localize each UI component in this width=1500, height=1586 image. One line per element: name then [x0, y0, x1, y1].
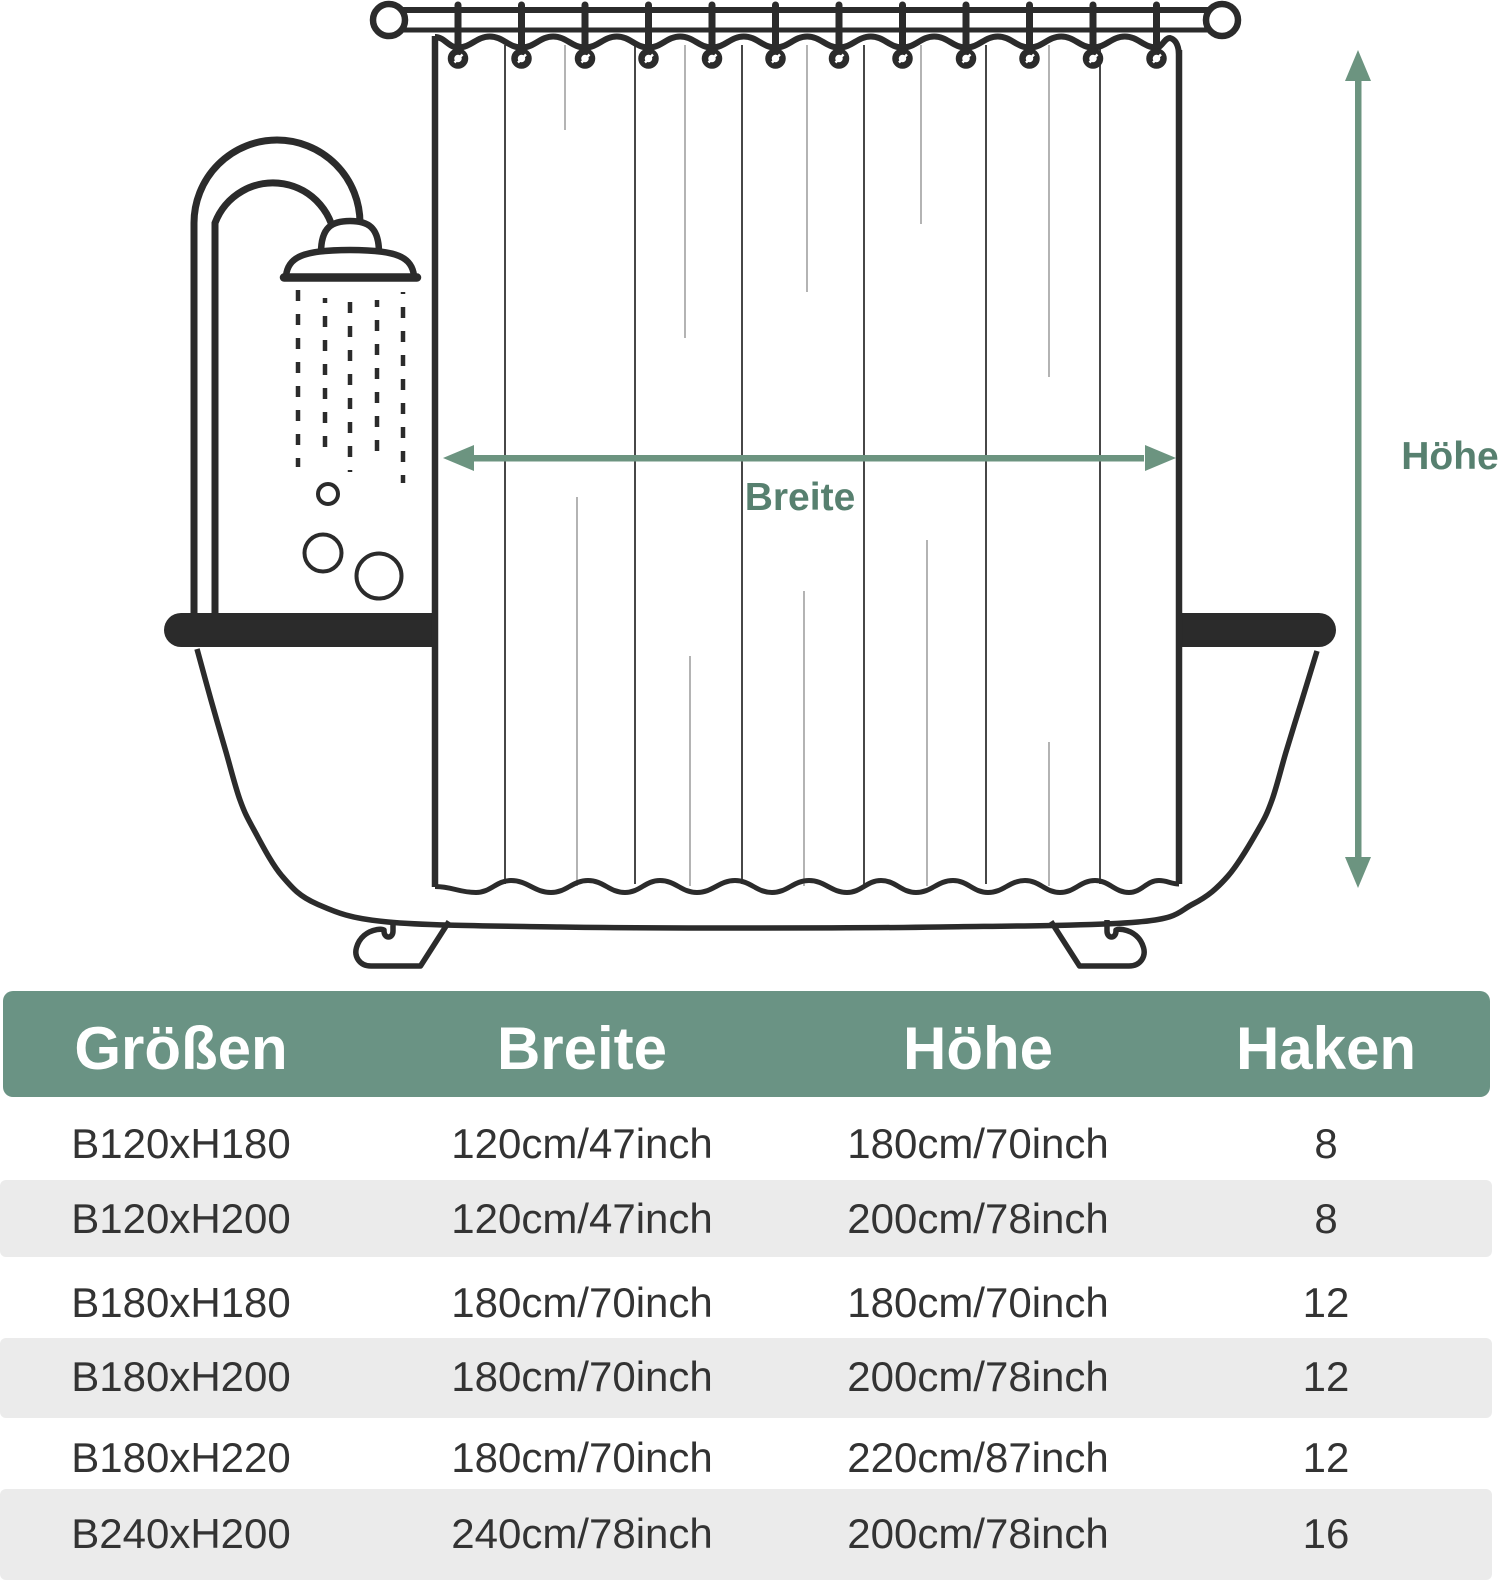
- svg-text:240cm/78inch: 240cm/78inch: [451, 1510, 713, 1557]
- svg-text:B240xH200: B240xH200: [71, 1510, 291, 1557]
- svg-text:220cm/87inch: 220cm/87inch: [847, 1434, 1109, 1481]
- svg-text:180cm/70inch: 180cm/70inch: [847, 1120, 1109, 1167]
- svg-text:Breite: Breite: [497, 1015, 667, 1082]
- svg-text:120cm/47inch: 120cm/47inch: [451, 1195, 713, 1242]
- svg-text:B180xH220: B180xH220: [71, 1434, 291, 1481]
- svg-text:180cm/70inch: 180cm/70inch: [451, 1279, 713, 1326]
- svg-text:16: 16: [1303, 1510, 1350, 1557]
- svg-text:8: 8: [1314, 1120, 1337, 1167]
- svg-text:Höhe: Höhe: [1401, 435, 1499, 478]
- svg-text:B180xH180: B180xH180: [71, 1279, 291, 1326]
- svg-text:8: 8: [1314, 1195, 1337, 1242]
- svg-text:Breite: Breite: [745, 476, 856, 519]
- svg-text:B180xH200: B180xH200: [71, 1353, 291, 1400]
- svg-text:12: 12: [1303, 1279, 1350, 1326]
- svg-text:Haken: Haken: [1236, 1015, 1416, 1082]
- svg-text:200cm/78inch: 200cm/78inch: [847, 1510, 1109, 1557]
- svg-text:Höhe: Höhe: [903, 1015, 1053, 1082]
- svg-text:12: 12: [1303, 1353, 1350, 1400]
- svg-text:180cm/70inch: 180cm/70inch: [451, 1353, 713, 1400]
- svg-text:180cm/70inch: 180cm/70inch: [451, 1434, 713, 1481]
- svg-text:200cm/78inch: 200cm/78inch: [847, 1353, 1109, 1400]
- svg-text:120cm/47inch: 120cm/47inch: [451, 1120, 713, 1167]
- svg-text:200cm/78inch: 200cm/78inch: [847, 1195, 1109, 1242]
- svg-text:180cm/70inch: 180cm/70inch: [847, 1279, 1109, 1326]
- svg-text:B120xH180: B120xH180: [71, 1120, 291, 1167]
- svg-text:Größen: Größen: [74, 1015, 287, 1082]
- svg-text:12: 12: [1303, 1434, 1350, 1481]
- svg-text:B120xH200: B120xH200: [71, 1195, 291, 1242]
